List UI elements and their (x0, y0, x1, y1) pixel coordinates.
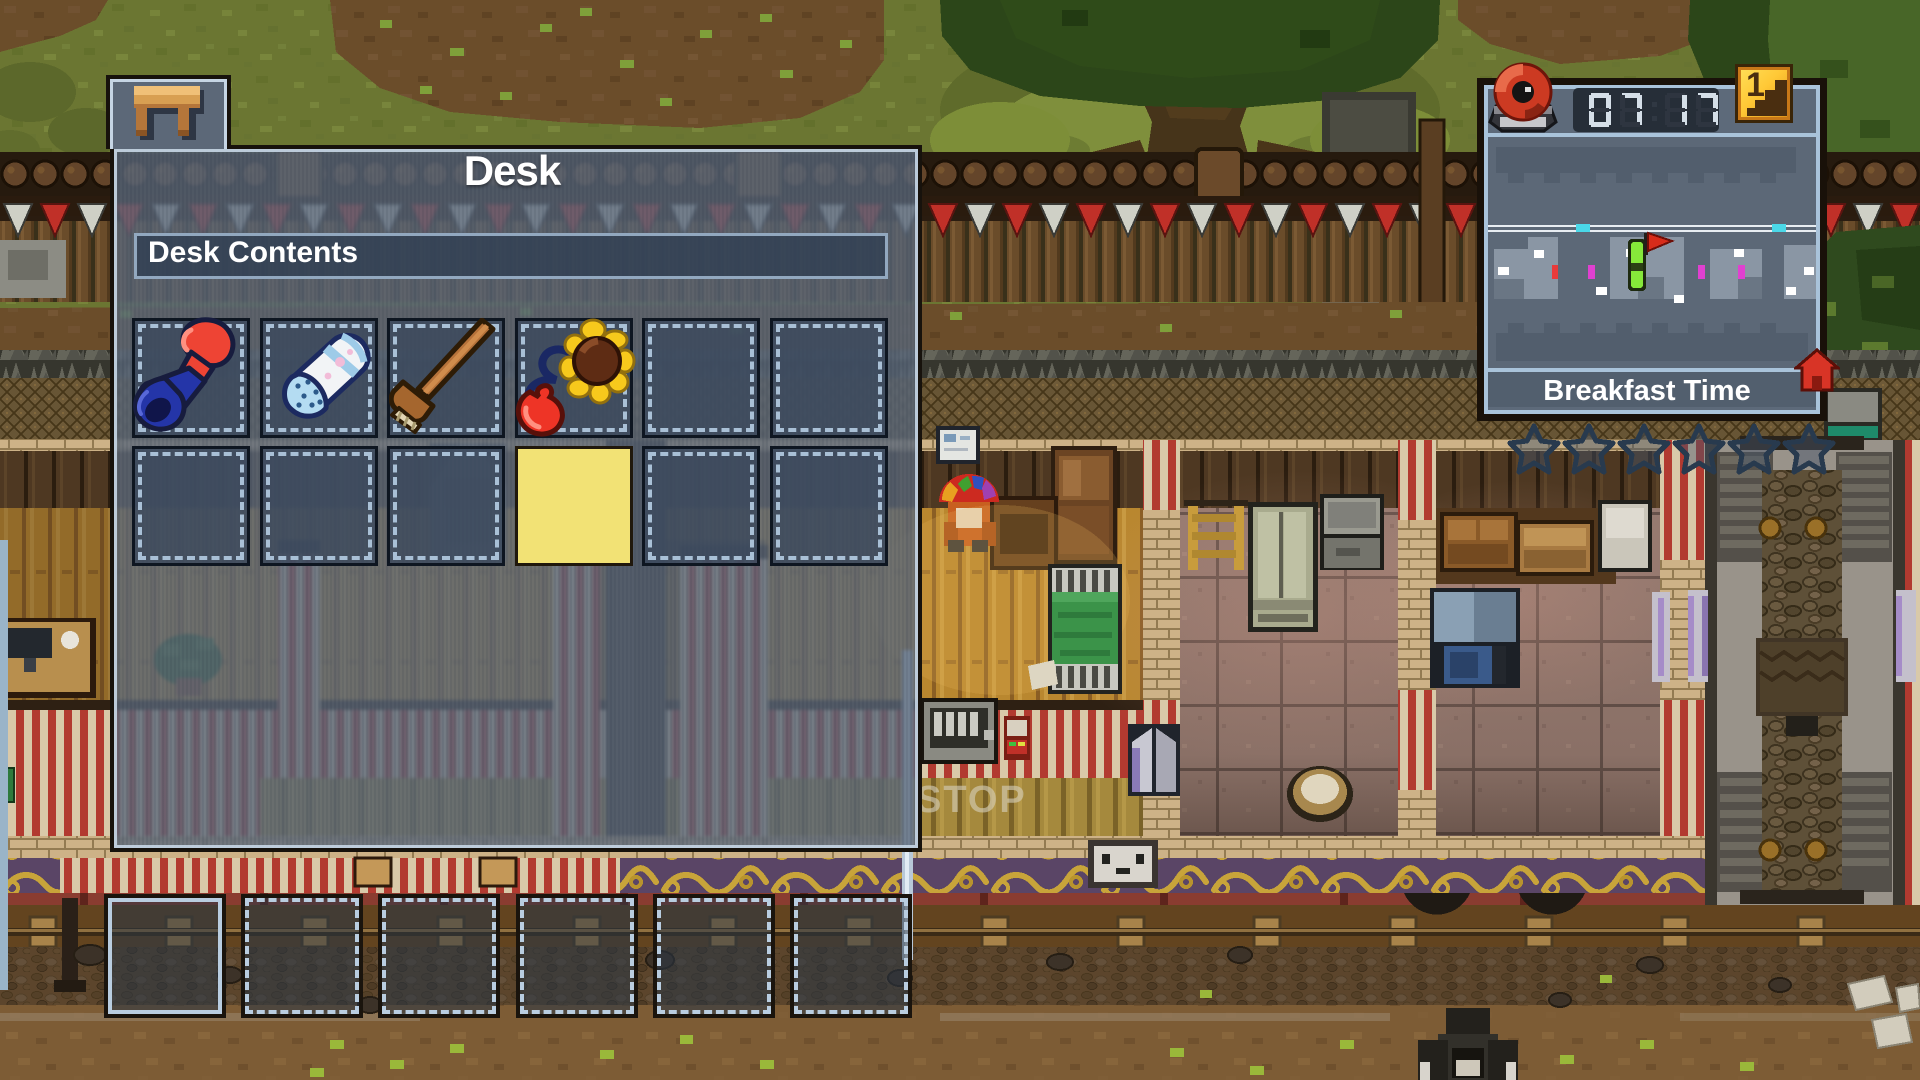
svg-text:STOP: STOP (916, 779, 1027, 821)
